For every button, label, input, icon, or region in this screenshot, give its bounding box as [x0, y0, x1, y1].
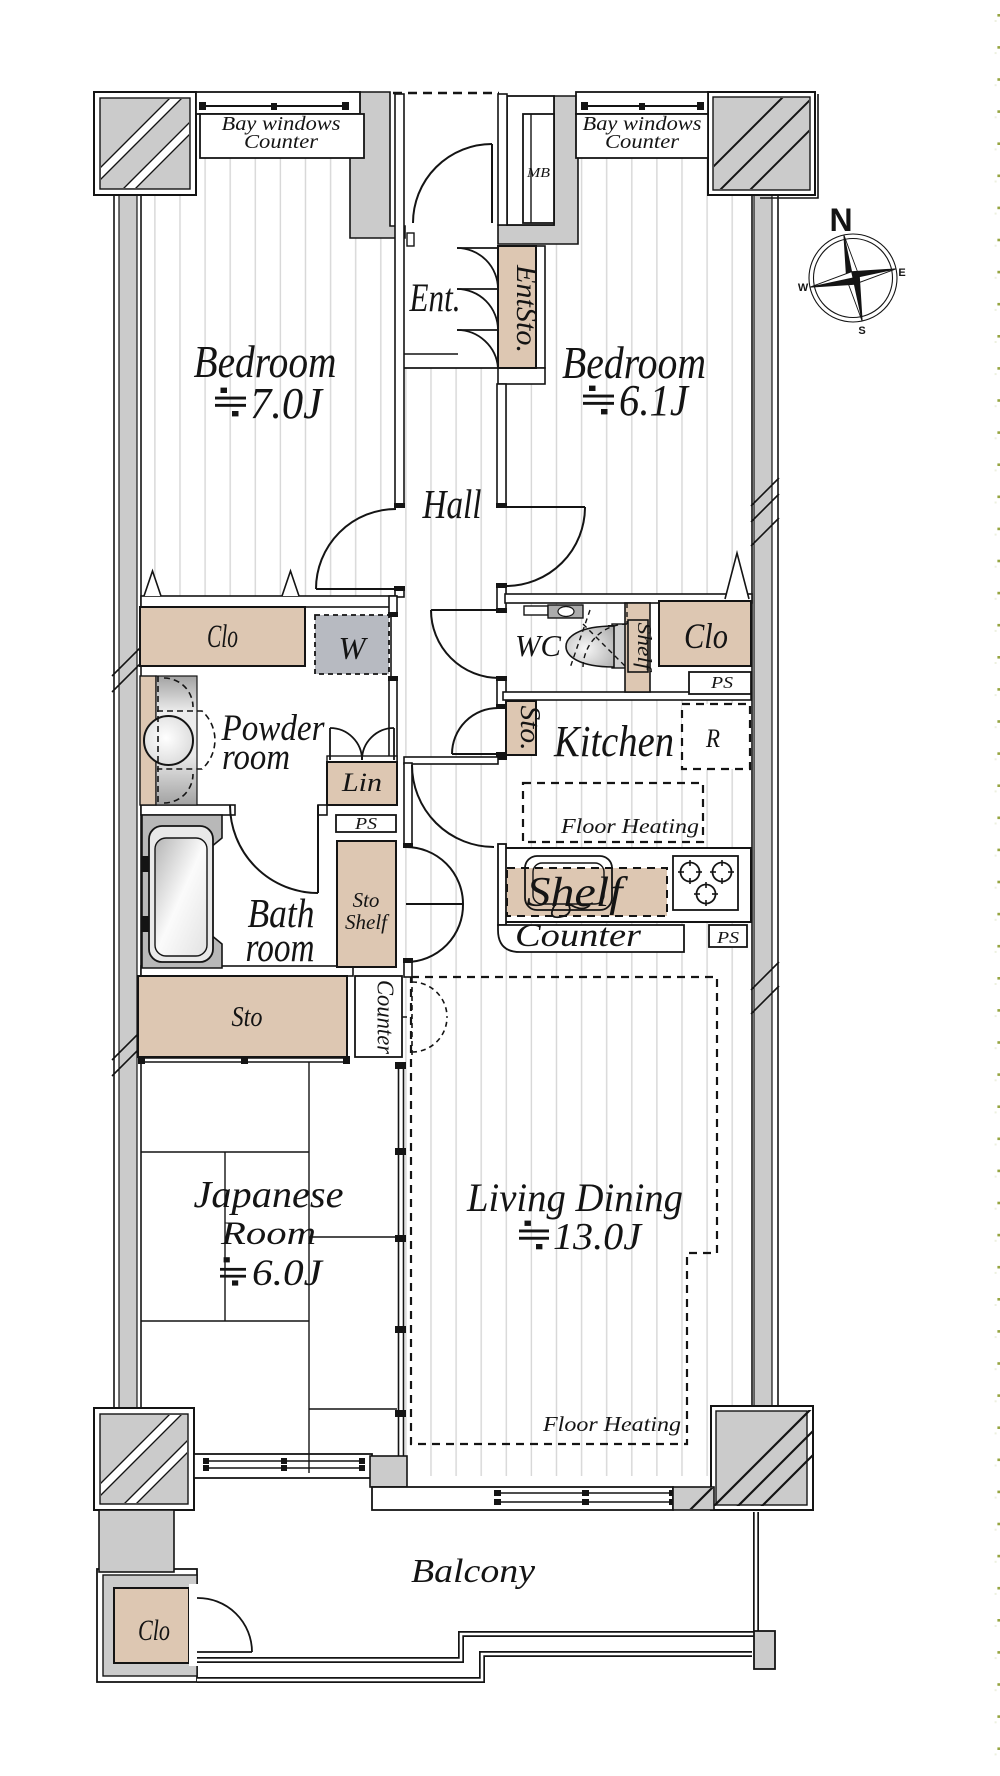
svg-text:Kitchen: Kitchen — [553, 717, 674, 766]
svg-text:PS: PS — [710, 673, 734, 692]
svg-text:Shelf: Shelf — [633, 623, 655, 673]
svg-text:S: S — [858, 325, 865, 337]
svg-text:Floor Heating: Floor Heating — [560, 814, 699, 838]
svg-text:Japanese: Japanese — [194, 1174, 344, 1216]
svg-text:room: room — [246, 924, 315, 970]
svg-text:6.0J: 6.0J — [252, 1253, 324, 1294]
svg-text:Counter: Counter — [605, 131, 679, 153]
svg-text:Living Dining: Living Dining — [466, 1175, 683, 1220]
svg-text:Lin: Lin — [341, 768, 382, 797]
svg-text:W: W — [798, 282, 809, 294]
svg-text:6.1J: 6.1J — [619, 376, 690, 425]
svg-text:Shelf: Shelf — [345, 910, 390, 934]
svg-text:13.0J: 13.0J — [553, 1216, 643, 1258]
svg-text:Clo: Clo — [684, 616, 728, 656]
svg-text:7.0J: 7.0J — [250, 379, 324, 428]
svg-text:Sto: Sto — [232, 1002, 263, 1033]
svg-text:Counter: Counter — [515, 918, 641, 954]
svg-text:Hall: Hall — [422, 481, 482, 527]
svg-text:R: R — [705, 724, 720, 753]
svg-text:E: E — [898, 267, 905, 279]
svg-text:Sto: Sto — [353, 888, 380, 912]
svg-text:Sto.: Sto. — [514, 706, 546, 751]
svg-text:Counter: Counter — [372, 980, 398, 1055]
svg-text:EntSto.: EntSto. — [510, 264, 543, 353]
svg-text:Balcony: Balcony — [411, 1553, 536, 1590]
svg-text:MB: MB — [526, 166, 551, 181]
svg-text:Room: Room — [220, 1216, 316, 1252]
svg-text:PS: PS — [716, 928, 740, 947]
svg-text:Ent.: Ent. — [409, 275, 461, 320]
svg-text:PS: PS — [354, 814, 378, 833]
svg-text:W: W — [339, 630, 369, 666]
svg-text:room: room — [222, 737, 290, 778]
svg-text:WC: WC — [515, 628, 561, 663]
svg-text:Counter: Counter — [244, 131, 318, 153]
svg-text:Floor Heating: Floor Heating — [542, 1412, 681, 1436]
svg-text:Clo: Clo — [138, 1614, 170, 1647]
svg-text:N: N — [829, 202, 852, 238]
svg-text:Shelf: Shelf — [527, 870, 629, 916]
svg-text:Clo: Clo — [207, 619, 238, 655]
